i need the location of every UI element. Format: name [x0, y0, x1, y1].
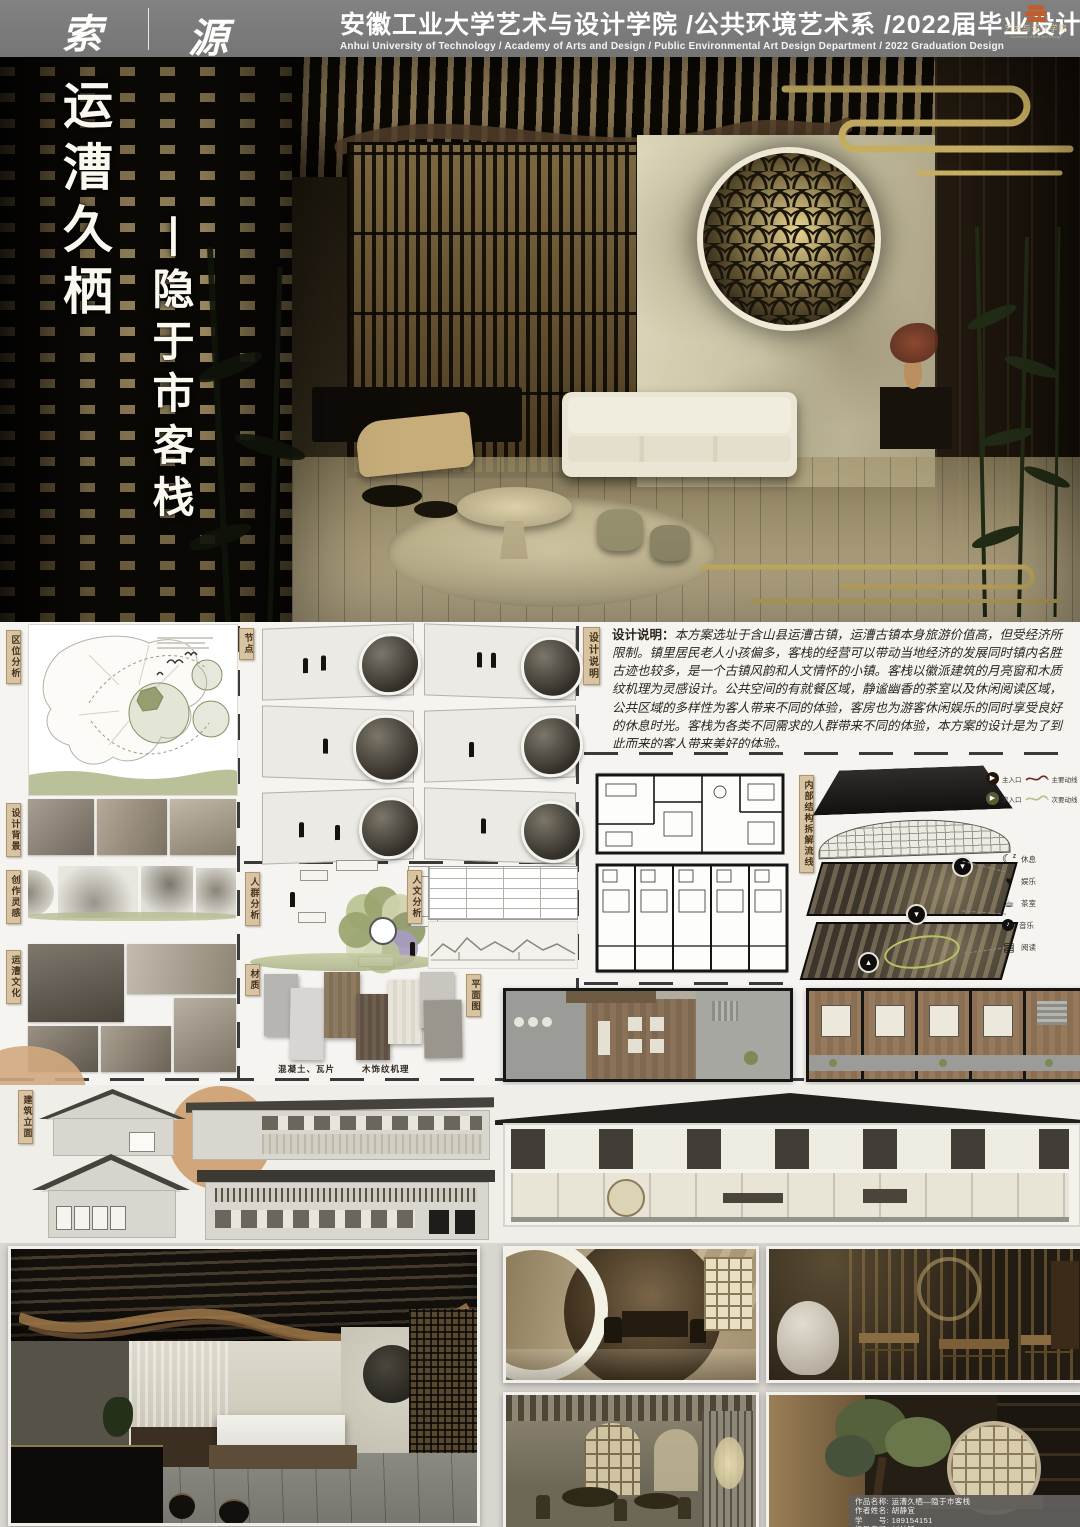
window	[74, 1206, 90, 1230]
poster-title: 安徽工业大学艺术与设计学院 /公共环境艺术系 /2022届毕业设计	[340, 5, 920, 41]
divider-dashed-statement	[584, 752, 1076, 755]
gable-face	[45, 1094, 180, 1120]
china-map-diagram	[29, 625, 237, 795]
sub-entrance-arrow-icon: ▶	[986, 792, 999, 805]
section-roof	[495, 1093, 1080, 1125]
axon-roof-layer	[811, 765, 1012, 816]
hero-image: 运漕久栖 丨隐于市客栈	[0, 57, 1080, 622]
plan-plant	[829, 1059, 837, 1067]
header-bar: 索 源 安徽工业大学艺术与设计学院 /公共环境艺术系 /2022届毕业设计 An…	[0, 0, 1080, 57]
node-sketch-card	[262, 787, 414, 864]
main-route-line-icon	[1025, 774, 1049, 784]
section-furniture	[723, 1193, 783, 1203]
tag-location-analysis: 区位分析	[6, 630, 21, 684]
texture-band	[262, 1134, 482, 1154]
window	[129, 1132, 155, 1152]
node-sketch-card	[262, 623, 414, 700]
function-row-music: ♪音乐	[1002, 914, 1080, 936]
tea-cup-icon: ☕	[1002, 896, 1016, 910]
tile-swatch	[423, 1000, 462, 1059]
door-panel	[1051, 1261, 1079, 1349]
tag-nodes: 节点	[239, 628, 254, 660]
arched-window	[654, 1429, 698, 1491]
section-perspective	[503, 1093, 1077, 1233]
material-caption-concrete: 混凝土、瓦片	[278, 1063, 335, 1075]
poster-subtitle: Anhui University of Technology / Academy…	[340, 41, 920, 52]
main-entrance-arrow-icon: ▶	[986, 772, 999, 785]
plan-gray-zone	[506, 991, 586, 1079]
design-statement-label: 设计说明：	[612, 627, 675, 642]
game-heart-icon: ♥	[1002, 874, 1016, 888]
section-base	[511, 1217, 1069, 1222]
ink-fan	[28, 870, 54, 916]
sub-entrance-label: 次入口	[1002, 794, 1022, 804]
humanities-sketch	[428, 921, 578, 969]
ink-house	[196, 868, 236, 918]
lobby-chain-screen	[409, 1309, 477, 1459]
window	[92, 1206, 108, 1230]
sub-route-label: 次要动线	[1052, 794, 1078, 804]
wood-swatch	[356, 994, 390, 1060]
guestroom-tree-render: 作品名称: 运漕久栖—隐于市客栈 作者姓名: 胡静宜 学 号: 18915415…	[766, 1392, 1080, 1527]
badge-name-en: Academy of Arts and Design	[1000, 34, 1072, 39]
design-statement-text: 本方案选址于含山县运漕古镇，运漕古镇本身旅游价值高，但受经济所限制。镇里居民老人…	[612, 627, 1062, 748]
plan-chair	[528, 1017, 538, 1027]
plan-bed	[929, 1005, 959, 1037]
tearoom-moongate-render	[503, 1246, 759, 1383]
humanities-table	[428, 866, 578, 920]
plan-courtyard	[696, 991, 790, 1079]
dining-table	[634, 1493, 680, 1509]
circulation-arrow-button: ▾	[906, 904, 927, 925]
site-photo	[97, 799, 167, 855]
archway-photo	[28, 944, 124, 1022]
logo-calligraphy-right: 源	[188, 6, 228, 64]
function-row-reading: ▤阅读	[1002, 936, 1080, 958]
lobby-black-bench	[11, 1445, 163, 1525]
school-badge: 艺术与设计学院 Academy of Arts and Design	[1000, 4, 1072, 39]
plan-chair	[514, 1017, 524, 1027]
cad-plan-first-floor	[594, 772, 786, 861]
plaster-swatch	[388, 980, 422, 1044]
function-row-tea: ☕茶室	[1002, 892, 1080, 914]
section-furniture	[863, 1189, 907, 1203]
main-entrance-label: 主入口	[1002, 774, 1022, 784]
tag-yunchao-culture: 运漕文化	[6, 950, 21, 1004]
vignette	[292, 57, 1080, 622]
dining-chair	[678, 1497, 691, 1519]
ink-inspiration-row	[28, 866, 236, 924]
wood-table	[859, 1333, 919, 1343]
dining-chair	[536, 1495, 550, 1519]
node-sketch-card	[424, 623, 576, 700]
vertical-title-main: 运漕久栖	[48, 79, 120, 389]
badge-icon	[1000, 5, 1072, 22]
floor-plan-render-public	[503, 988, 793, 1082]
tag-floor-plan: 平面图	[466, 974, 481, 1017]
credits-work: 作品名称: 运漕久栖—隐于市客栈	[855, 1498, 1080, 1506]
window-strip	[262, 1116, 482, 1130]
tree-canopy	[825, 1435, 875, 1477]
music-disc-icon: ♪	[1002, 919, 1014, 931]
roof-strip	[197, 1170, 495, 1182]
tag-design-background: 设计背景	[6, 803, 21, 857]
plan-chair	[542, 1017, 552, 1027]
function-row-rest: ☾z休息	[1002, 848, 1080, 870]
plan-bed	[983, 1005, 1013, 1037]
gable-face	[40, 1160, 182, 1192]
plan-stair	[1037, 1001, 1067, 1025]
plan-long-table	[598, 1021, 610, 1055]
round-dining-table	[562, 1487, 618, 1507]
legend-sub-entrance-row: ▶ 次入口 次要动线	[986, 792, 1080, 805]
concrete-swatch	[289, 988, 324, 1061]
plan-bed	[821, 1005, 851, 1037]
plan-counter	[566, 991, 656, 1003]
lobby-stool	[169, 1493, 195, 1519]
tea-table	[622, 1311, 688, 1337]
oval-moon-light	[714, 1437, 744, 1489]
section-moon-circle	[607, 1179, 645, 1217]
tree-canopy	[885, 1417, 951, 1467]
tag-building-elevation: 建筑立面	[18, 1090, 33, 1144]
site-photo	[28, 799, 94, 855]
graduation-design-poster: 索 源 安徽工业大学艺术与设计学院 /公共环境艺术系 /2022届毕业设计 An…	[0, 0, 1080, 1527]
floor-sheen	[506, 1349, 756, 1380]
gable-elevation-2	[40, 1158, 182, 1236]
material-caption-wood: 木饰纹机理	[362, 1063, 410, 1075]
plan-plant	[1045, 1059, 1053, 1067]
dining-hall-render	[503, 1392, 759, 1527]
credits-id: 学 号: 189154151	[855, 1517, 1080, 1525]
credits-author: 作者姓名: 胡静宜	[855, 1507, 1080, 1515]
plan-table	[628, 1039, 642, 1053]
section-lower-floor	[511, 1173, 1069, 1217]
logo-calligraphy-left: 索	[62, 2, 102, 60]
plan-table	[650, 1039, 664, 1053]
building-photo	[174, 998, 236, 1072]
plan-stair	[712, 1001, 738, 1021]
window	[56, 1206, 72, 1230]
tag-humanities-analysis: 人文分析	[407, 870, 422, 924]
site-photo	[170, 799, 236, 855]
moon-circle-hint	[917, 1257, 981, 1321]
section-upper-floor	[511, 1129, 1069, 1169]
plan-plant	[939, 1059, 947, 1067]
door	[429, 1210, 449, 1234]
lobby-stool	[219, 1499, 249, 1525]
function-legend: ☾z休息 ♥娱乐 ☕茶室 ♪音乐 ▤阅读	[1002, 848, 1080, 958]
plan-bed	[875, 1005, 905, 1037]
node-sketch-card	[262, 705, 414, 782]
axon-grid-layer	[817, 817, 1010, 860]
ink-green-wash	[28, 912, 236, 921]
material-swatches	[264, 972, 464, 1062]
window-lattice	[704, 1257, 752, 1331]
cad-plan-second-floor	[594, 862, 790, 979]
tag-crowd-analysis: 人群分析	[245, 872, 260, 926]
flower-center	[369, 917, 397, 945]
badge-name: 艺术与设计学院	[1000, 23, 1072, 34]
design-statement: 设计说明：本方案选址于含山县运漕古镇，运漕古镇本身旅游价值高，但受经济所限制。镇…	[612, 626, 1074, 748]
sub-route-line-icon	[1025, 794, 1049, 804]
tag-material: 材质	[245, 964, 260, 996]
long-elevation-1	[192, 1100, 488, 1158]
long-elevation-2	[205, 1170, 487, 1238]
balcony-rail	[215, 1188, 477, 1202]
wood-swatch	[324, 972, 360, 1038]
door	[455, 1210, 475, 1234]
tag-structure-circulation: 内部结构拆解流线	[799, 775, 814, 873]
plan-plant	[744, 1051, 758, 1065]
lobby-render	[8, 1246, 480, 1526]
tea-chair	[604, 1317, 622, 1343]
arched-window	[584, 1423, 640, 1497]
moon-rest-icon: ☾z	[1002, 852, 1016, 866]
plan-table	[628, 1017, 642, 1031]
tag-inspiration: 创作灵感	[6, 870, 21, 924]
legend-main-entrance-row: ▶ 主入口 主要动线	[986, 772, 1080, 785]
dark-tearoom-render	[766, 1246, 1080, 1383]
logo-divider	[148, 8, 149, 50]
entrance-legend: ▶ 主入口 主要动线 ▶ 次入口 次要动线	[986, 772, 1080, 812]
river-photo	[127, 944, 236, 994]
location-map-panel	[28, 624, 238, 796]
credits-block: 作品名称: 运漕久栖—隐于市客栈 作者姓名: 胡静宜 学 号: 18915415…	[849, 1495, 1080, 1527]
tag-design-statement: 设计说明	[583, 627, 600, 685]
divider-dashed-cad	[584, 982, 792, 985]
header-titles: 安徽工业大学艺术与设计学院 /公共环境艺术系 /2022届毕业设计 Anhui …	[340, 5, 920, 52]
window	[110, 1206, 126, 1230]
gable-elevation-1	[45, 1092, 180, 1154]
roof-photo	[101, 1026, 171, 1072]
ink-mountains	[58, 866, 138, 918]
ink-bamboo	[141, 866, 193, 918]
lobby-interior-render	[292, 57, 1080, 622]
node-sketch-card	[424, 705, 576, 782]
lobby-desk-base	[209, 1445, 357, 1469]
dining-chair	[614, 1499, 627, 1521]
wood-table	[939, 1339, 1009, 1349]
node-sketch-grid	[262, 624, 576, 862]
circulation-arrow-button: ▾	[952, 856, 973, 877]
wall-face	[53, 1118, 174, 1156]
plan-table	[650, 1017, 664, 1031]
node-sketch-card	[424, 787, 576, 864]
terrain-strip	[250, 953, 440, 971]
window-strip	[215, 1210, 415, 1228]
floor-plan-render-guestrooms	[806, 988, 1080, 1082]
circulation-arrow-button: ▴	[858, 952, 879, 973]
main-route-label: 主要动线	[1052, 774, 1078, 784]
stone-sculpture	[777, 1301, 839, 1375]
vertical-title-sub: 丨隐于市客栈	[140, 215, 201, 615]
function-row-entertainment: ♥娱乐	[1002, 870, 1080, 892]
site-photos-row	[28, 799, 236, 855]
